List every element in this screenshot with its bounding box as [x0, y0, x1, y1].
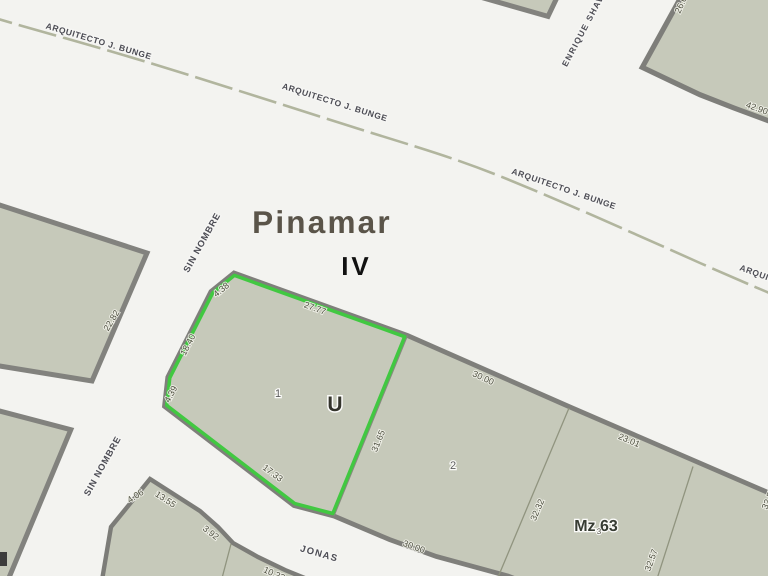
- svg-text:IV: IV: [341, 251, 372, 281]
- svg-text:Pinamar: Pinamar: [252, 204, 392, 240]
- svg-text:2: 2: [450, 460, 456, 472]
- svg-text:U: U: [327, 393, 342, 416]
- svg-text:3: 3: [597, 527, 602, 536]
- svg-text:1: 1: [275, 388, 281, 400]
